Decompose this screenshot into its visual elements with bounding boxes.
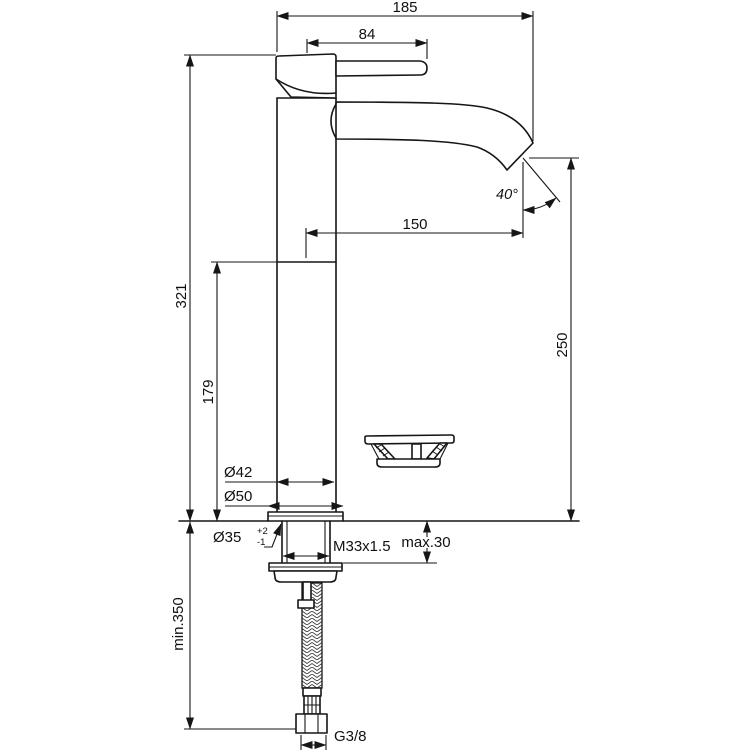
dim-spout-reach: 150	[306, 162, 523, 258]
dim-hole-tol-minus: -1	[257, 537, 265, 548]
dim-min-hose-clearance-label: min.350	[170, 597, 187, 650]
dim-base-diameter: Ø50	[224, 488, 343, 506]
hose-collar	[303, 688, 321, 696]
dim-hole-tol-plus: +2	[257, 526, 268, 537]
hose-hex-nut	[296, 714, 327, 733]
faucet-body	[277, 98, 336, 512]
faucet-outline	[179, 54, 579, 733]
dim-max-deck-thickness-label: max.30	[401, 534, 450, 551]
dim-hole-diameter: Ø35 +2 -1	[213, 524, 281, 548]
dim-spout-angle-label: 40°	[496, 187, 518, 203]
dim-total-height-label: 321	[173, 283, 190, 308]
dim-shank-thread-label: M33x1.5	[333, 538, 391, 555]
dim-outlet-height: 250	[529, 158, 579, 521]
mounting-nut	[269, 563, 342, 582]
dim-spout-base-height-label: 179	[200, 379, 217, 404]
dim-body-diameter: Ø42	[224, 464, 334, 482]
dim-hose-connection-label: G3/8	[334, 728, 367, 745]
spout	[336, 102, 533, 170]
dim-shank-thread: M33x1.5	[283, 538, 391, 556]
supply-hose	[296, 582, 327, 733]
drain-plug-strut-left	[374, 444, 395, 459]
dim-overall-width-label: 185	[392, 0, 417, 16]
dim-spout-reach-label: 150	[402, 216, 427, 233]
dim-outlet-height-label: 250	[554, 332, 571, 357]
dim-body-diameter-label: Ø42	[224, 464, 252, 481]
dim-min-hose-clearance: min.350	[170, 522, 296, 729]
mounting-shank	[282, 521, 330, 563]
drain-plug-post	[412, 444, 421, 459]
base-flange	[268, 512, 343, 521]
technical-drawing-canvas: 185 84 150 40° 250 321 179 min.350	[0, 0, 750, 750]
drain-plug-cup	[377, 459, 440, 467]
dim-lever-length-label: 84	[359, 26, 376, 43]
handle	[276, 54, 427, 98]
drain-plug	[365, 435, 454, 467]
dim-hole-diameter-label: Ø35	[213, 529, 241, 546]
fixing-stud	[303, 582, 311, 601]
dim-total-height: 321	[173, 55, 276, 521]
stud-nut	[298, 600, 314, 608]
handle-lever	[336, 61, 427, 76]
faucet-dimension-drawing: 185 84 150 40° 250 321 179 min.350	[0, 0, 750, 750]
hose-ferrule	[304, 696, 320, 714]
dim-base-diameter-label: Ø50	[224, 488, 252, 505]
